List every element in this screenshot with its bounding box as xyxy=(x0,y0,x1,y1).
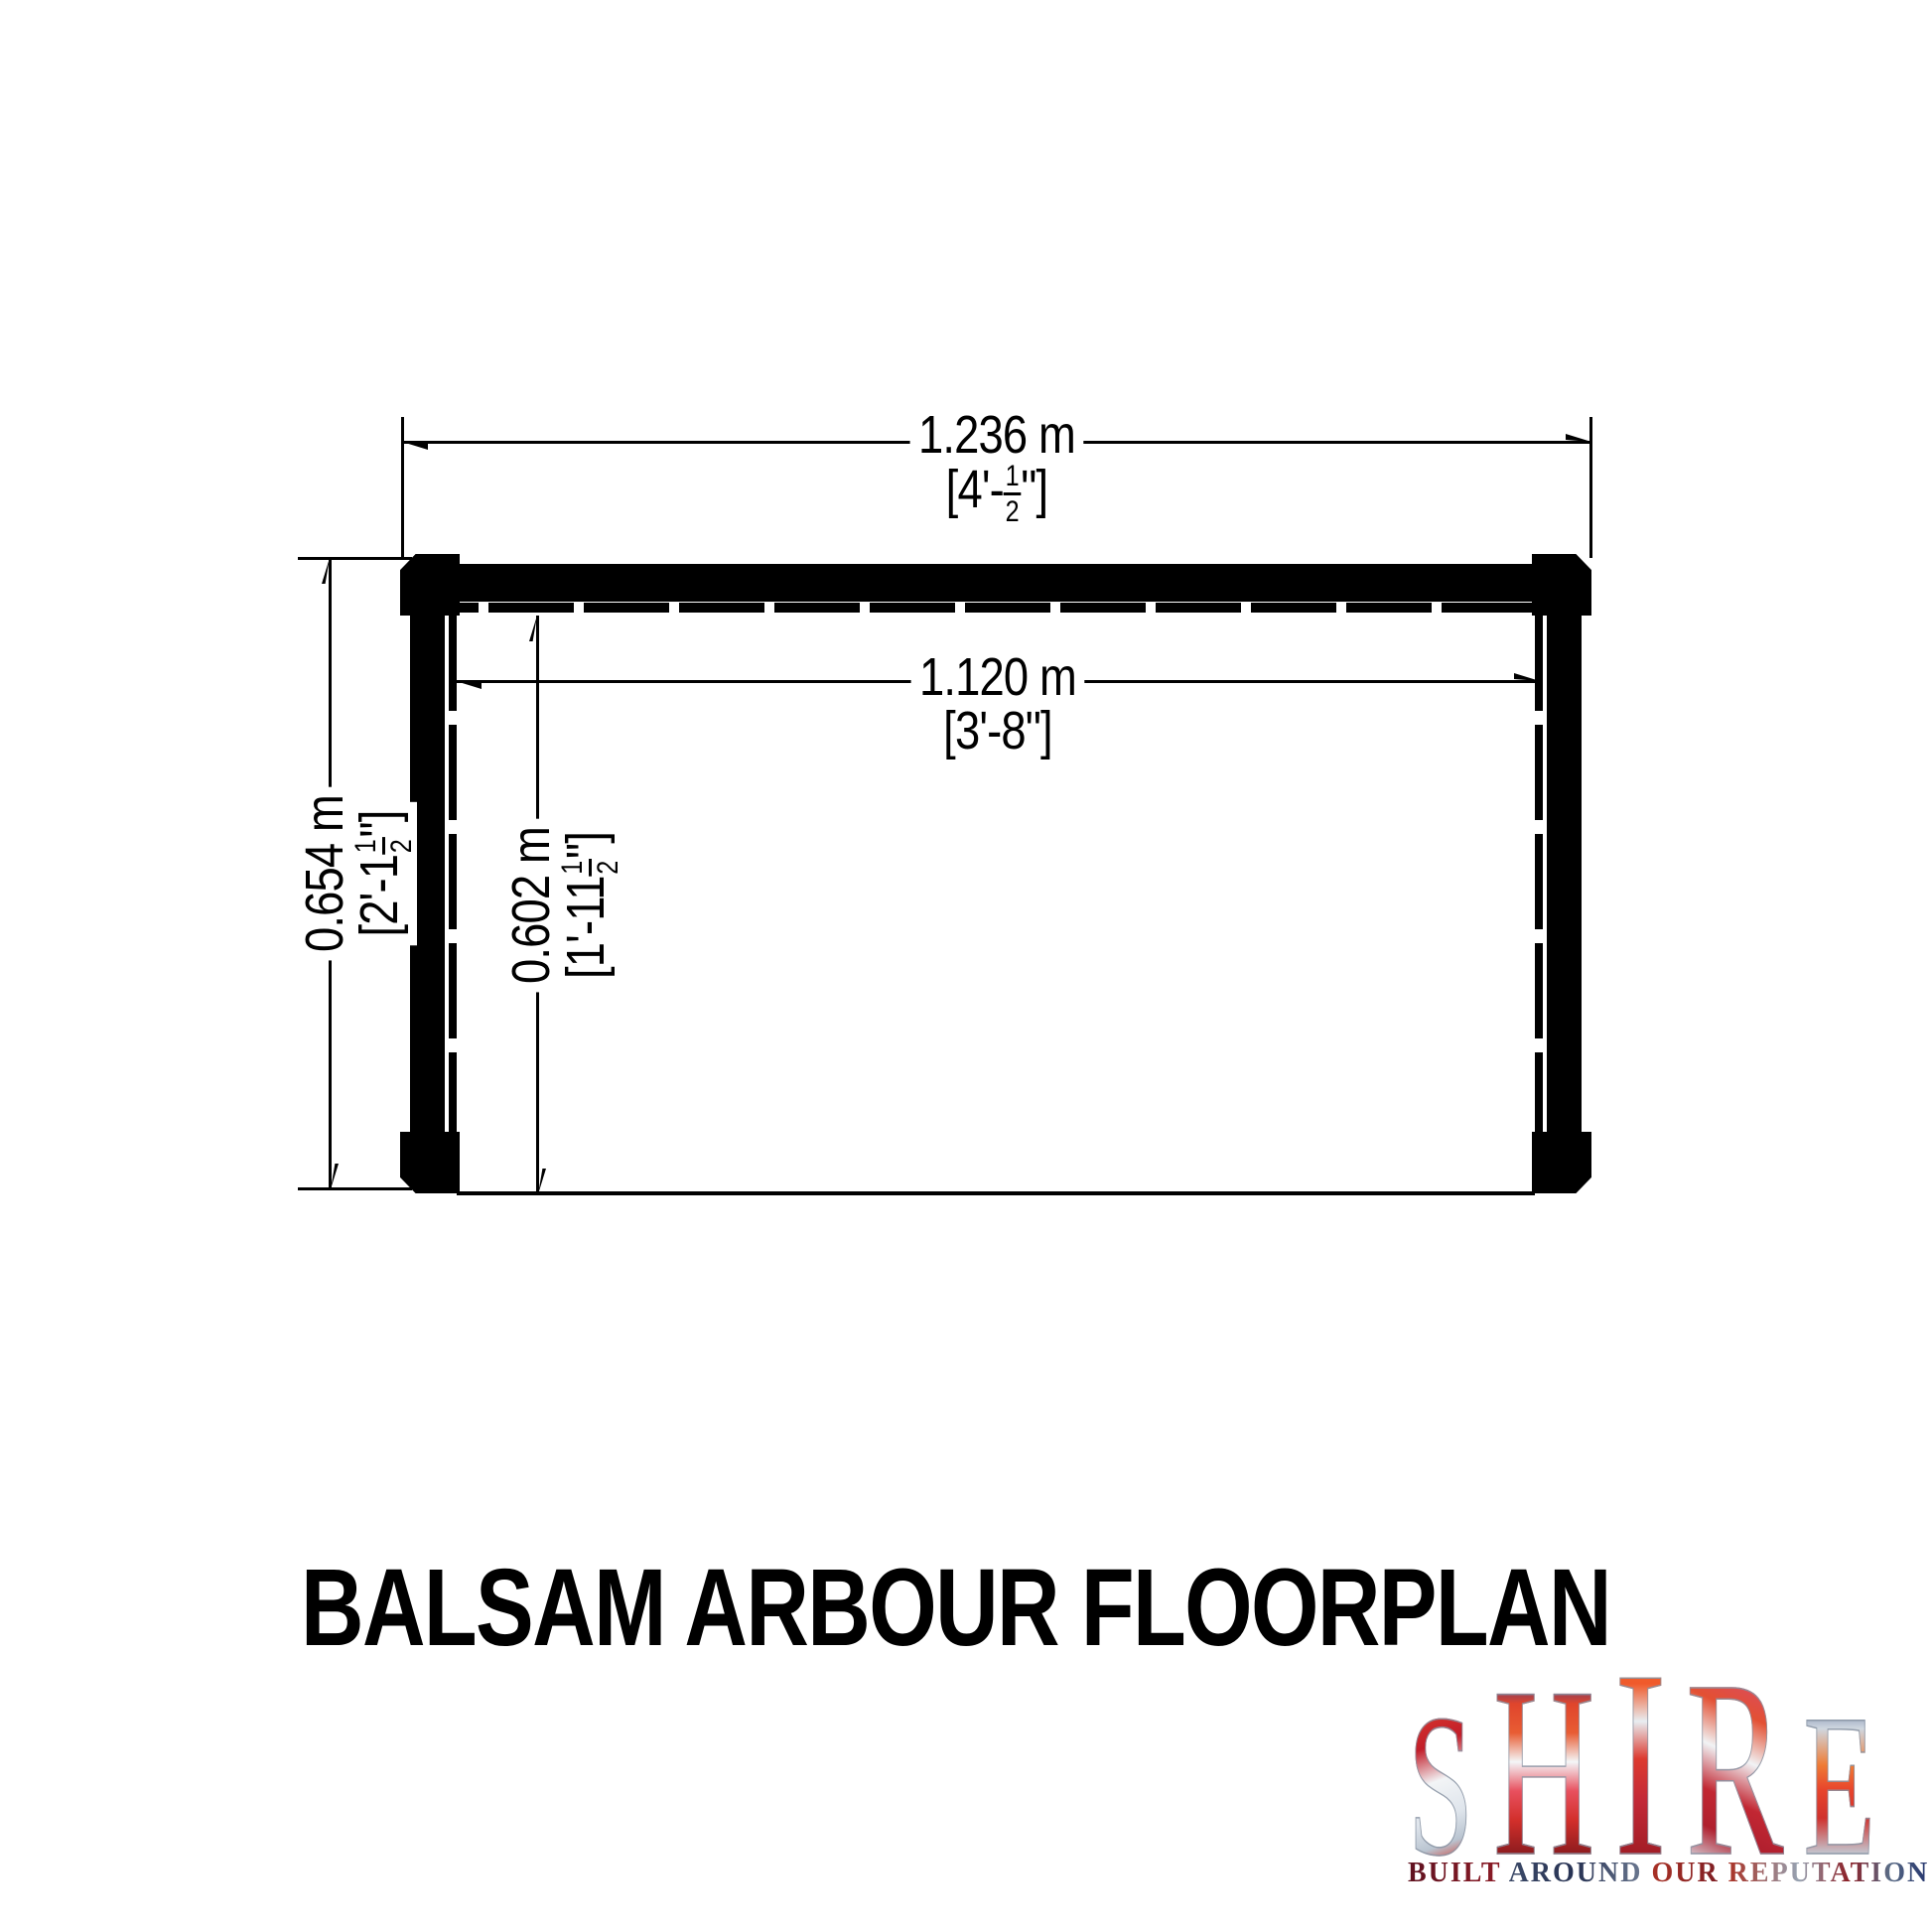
fraction: 12 xyxy=(351,838,417,855)
corner-post-top-left xyxy=(400,554,460,616)
tagline-word: AROUND xyxy=(1509,1858,1643,1888)
corner-post-bottom-left xyxy=(400,1132,460,1193)
floor-edge-line xyxy=(457,1191,1535,1195)
fraction: 12 xyxy=(558,859,623,876)
dim-metric: 0.654 m xyxy=(298,787,351,961)
dim-imperial: [4'-12"] xyxy=(937,462,1055,527)
extension-line-left xyxy=(453,614,456,705)
tagline-word: OUR xyxy=(1651,1858,1719,1888)
dim-imperial: [2'-112"] xyxy=(351,802,417,945)
extension-line-right xyxy=(1539,614,1542,705)
dim-metric: 1.236 m xyxy=(910,408,1084,462)
extension-line-top xyxy=(298,557,412,560)
dim-metric: 1.120 m xyxy=(911,650,1085,704)
back-slats-line xyxy=(454,603,1535,613)
dim-metric: 0.602 m xyxy=(504,819,558,993)
tagline-word: BUILT xyxy=(1408,1858,1501,1888)
back-rail xyxy=(460,564,1532,602)
dim-imperial: [1'-1112"] xyxy=(558,824,623,988)
extension-line-bottom xyxy=(298,1187,412,1190)
right-wall xyxy=(1547,612,1582,1138)
extension-line-right xyxy=(1589,417,1592,558)
dim-text-inner-width: 1.120 m [3'-8"] xyxy=(911,650,1085,758)
tagline-word: REPUTATION xyxy=(1728,1858,1930,1888)
corner-post-bottom-right xyxy=(1532,1132,1591,1193)
corner-post-top-right xyxy=(1532,554,1591,616)
dim-imperial: [3'-8"] xyxy=(935,704,1060,758)
arrowhead-bottom xyxy=(331,1164,339,1189)
floorplan-page: 1.236 m [4'-12"] 1.120 m [3'-8"] 0.654 m… xyxy=(0,0,1932,1932)
extension-line-left xyxy=(401,417,404,559)
dim-text-overall-width: 1.236 m [4'-12"] xyxy=(910,408,1084,527)
fraction: 12 xyxy=(1004,462,1021,527)
logo-tagline: BUILT AROUND OUR REPUTATION xyxy=(1408,1859,1929,1888)
